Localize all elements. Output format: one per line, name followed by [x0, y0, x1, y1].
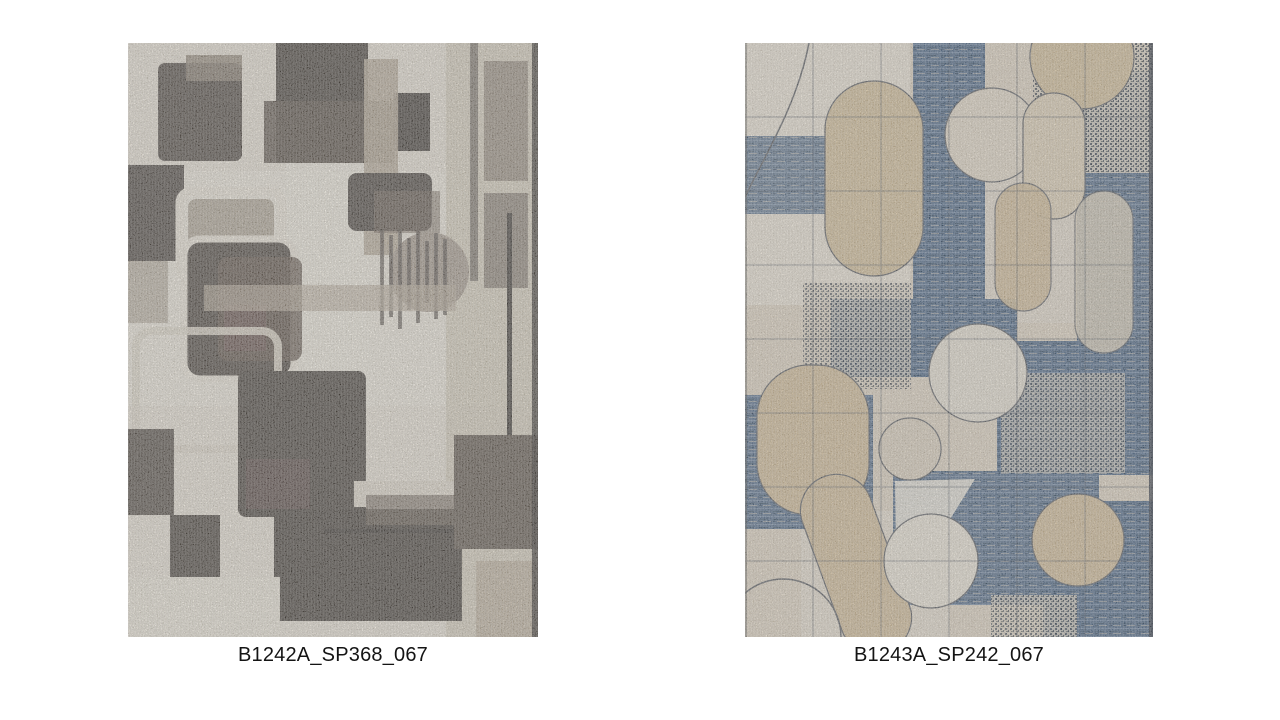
- catalog-page: B1242A_SP368_067: [0, 0, 1280, 720]
- rug-left-texture: [128, 43, 538, 637]
- rug-image-right: [745, 43, 1153, 637]
- product-figure-left: B1242A_SP368_067: [128, 43, 538, 666]
- rug-image-left: [128, 43, 538, 637]
- product-figure-right: B1243A_SP242_067: [745, 43, 1153, 666]
- rug-right-texture: [745, 43, 1153, 637]
- product-label-right: B1243A_SP242_067: [745, 644, 1153, 666]
- product-label-left: B1242A_SP368_067: [128, 644, 538, 666]
